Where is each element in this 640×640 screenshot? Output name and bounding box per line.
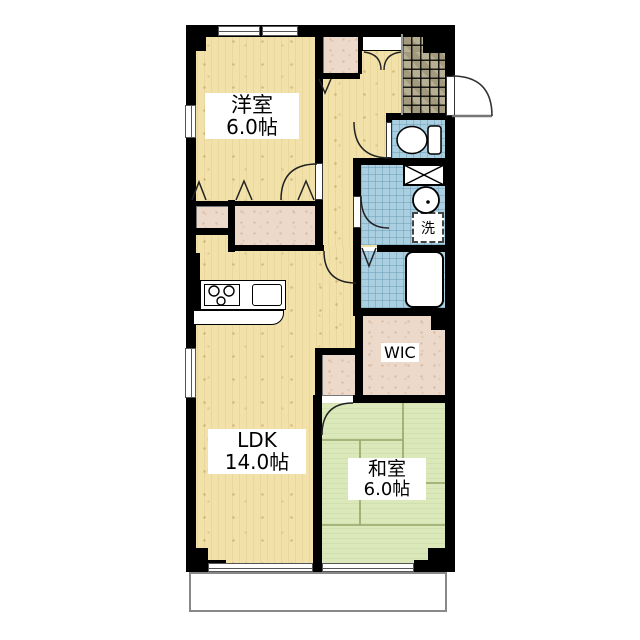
label-wic: WIC bbox=[381, 343, 419, 362]
closet-folding-door-1 bbox=[192, 182, 206, 200]
shoe-cabinet-door-left bbox=[364, 52, 381, 70]
floorplan: 洗 bbox=[0, 0, 640, 640]
western-room-size: 6.0帖 bbox=[208, 117, 296, 139]
closet-folding-door-2 bbox=[236, 181, 252, 200]
washbasin-drain bbox=[426, 200, 430, 204]
label-japanese-room: 和室 6.0帖 bbox=[348, 458, 426, 500]
japanese-room-name: 和室 bbox=[351, 459, 423, 480]
ldk-size: 14.0帖 bbox=[211, 452, 303, 474]
toilet-tank bbox=[428, 126, 441, 154]
ldk-door-swing bbox=[324, 251, 356, 283]
bath-folding-door bbox=[362, 248, 376, 266]
closet-folding-door-3 bbox=[298, 181, 314, 200]
ldk-name: LDK bbox=[211, 430, 303, 452]
japanese-room-size: 6.0帖 bbox=[351, 480, 423, 499]
label-western-room: 洋室 6.0帖 bbox=[205, 93, 299, 139]
stove-burner-2 bbox=[224, 286, 234, 296]
washroom-door-swing bbox=[361, 196, 389, 228]
shoe-cabinet-door-right bbox=[384, 52, 401, 70]
balcony bbox=[189, 572, 447, 612]
entrance-door-swing bbox=[452, 76, 492, 116]
toilet-bowl bbox=[397, 127, 427, 154]
symbol-overlay bbox=[0, 0, 640, 640]
stove-burner-3 bbox=[217, 297, 225, 305]
label-ldk: LDK 14.0帖 bbox=[208, 429, 306, 474]
wic-name: WIC bbox=[384, 343, 416, 362]
washbasin-fixture bbox=[413, 187, 439, 213]
western-room-name: 洋室 bbox=[208, 94, 296, 117]
toilet-door-swing bbox=[354, 122, 390, 158]
japanese-door-swing bbox=[322, 403, 353, 435]
stove-burner-1 bbox=[209, 286, 219, 296]
hall-closet-folding-door bbox=[319, 79, 331, 93]
